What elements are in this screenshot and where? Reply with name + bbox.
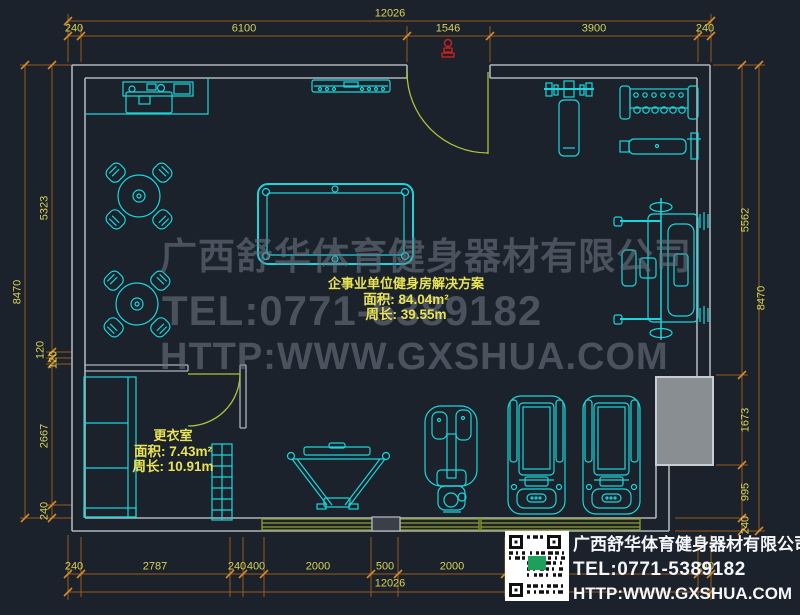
dim-right-seg: 5562 <box>741 208 752 232</box>
dim-bottom-seg: 400 <box>247 562 265 573</box>
round-table-chairs-1 <box>104 161 175 232</box>
dim-bottom-seg: 240 <box>65 562 83 573</box>
logo-website: HTTP:WWW.GXSHUA.COM <box>573 585 792 602</box>
wall-bench <box>312 80 390 92</box>
changing-room-label-block: 更衣室 面积: 7.43m² 周长: 10.91m <box>132 429 213 475</box>
dim-bottom-seg: 500 <box>376 562 394 573</box>
dim-left-seg: 120 <box>49 351 60 369</box>
dim-right-total: 8470 <box>757 286 768 310</box>
company-logo-block: 广西舒华体育健身器材有限公司 TEL:0771-5389182 HTTP:WWW… <box>505 528 800 615</box>
treadmill-2 <box>583 396 640 514</box>
watermark-company: 广西舒华体育健身器材有限公司 <box>160 238 692 275</box>
plan-perimeter: 周长: 39.55m <box>328 307 484 323</box>
watermark-website: HTTP:WWW.GXSHUA.COM <box>160 338 669 376</box>
logo-company: 广西舒华体育健身器材有限公司 <box>573 536 800 553</box>
dim-bottom-seg: 240 <box>228 562 246 573</box>
dim-left-seg: 240 <box>40 502 51 520</box>
rowing-machine <box>288 443 390 509</box>
dim-left-seg: 2667 <box>40 424 51 448</box>
floor-step <box>372 517 400 531</box>
barbell-bench <box>544 81 594 156</box>
cad-floor-plan-canvas[interactable]: 12026 240 6100 1546 3900 240 12026 240 2… <box>0 0 800 615</box>
changing-room-name: 更衣室 <box>132 429 213 444</box>
entrance-door <box>407 72 488 154</box>
reception-desk <box>123 82 193 113</box>
changing-room-area: 面积: 7.43m² <box>132 444 213 460</box>
elliptical-trainer <box>425 406 477 512</box>
dim-bottom-seg: 2000 <box>306 562 330 573</box>
dim-bottom-total: 12026 <box>375 579 406 590</box>
changing-room-door <box>188 374 240 426</box>
locker-grid <box>212 444 232 520</box>
dim-left-total: 8470 <box>13 280 24 304</box>
dim-left-seg: 120 <box>36 341 47 359</box>
plan-title-block: 企事业单位健身房解决方案 面积: 84.04m² 周长: 39.55m <box>328 277 484 323</box>
lockers-cabinet <box>84 377 136 517</box>
dim-top-total: 12026 <box>375 9 406 20</box>
changing-room-perimeter: 周长: 10.91m <box>132 459 213 475</box>
dim-left-seg: 5323 <box>40 196 51 220</box>
flat-bench <box>620 133 701 159</box>
treadmill-1 <box>508 396 565 514</box>
dim-right-seg: 995 <box>741 483 752 501</box>
dim-top-seg: 240 <box>65 24 83 35</box>
entrance-marker-icon <box>442 40 454 58</box>
dim-top-seg: 1546 <box>436 24 460 35</box>
dim-top-seg: 240 <box>696 24 714 35</box>
dim-right-seg: 1673 <box>741 408 752 432</box>
plan-area: 面积: 84.04m² <box>328 292 484 308</box>
dim-top-seg: 3900 <box>582 24 606 35</box>
plan-title: 企事业单位健身房解决方案 <box>328 277 484 292</box>
dumbbell-rack <box>620 86 698 119</box>
dim-top-seg: 6100 <box>232 24 256 35</box>
logo-tel: TEL:0771-5389182 <box>573 560 746 579</box>
dim-bottom-seg: 2787 <box>143 562 167 573</box>
dim-bottom-seg: 2000 <box>440 562 464 573</box>
wall-block <box>656 377 713 465</box>
